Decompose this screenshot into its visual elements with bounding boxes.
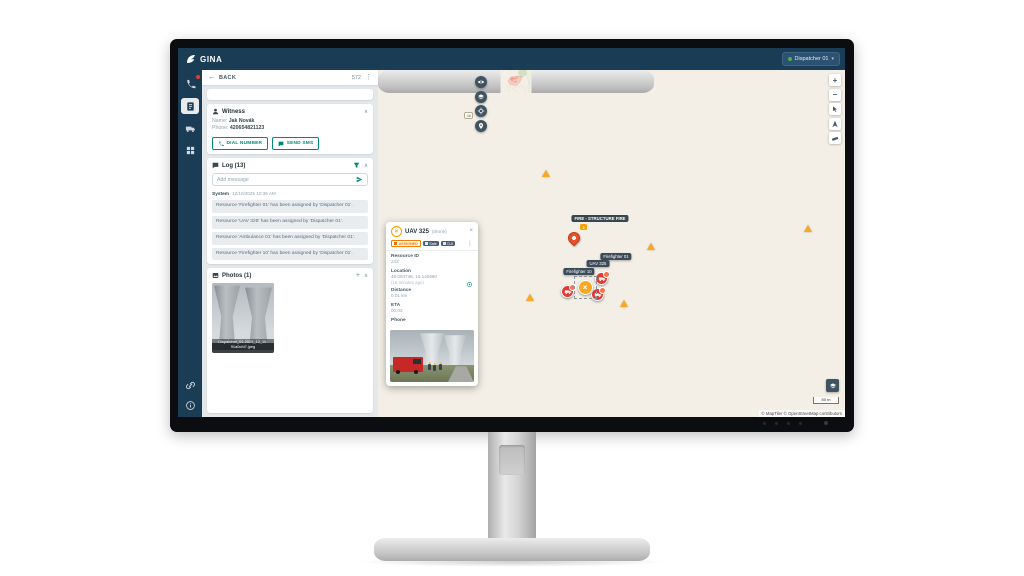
image-icon [212, 272, 219, 279]
collapse-witness-button[interactable]: ∧ [364, 109, 368, 115]
map-scale: 50 m [813, 397, 839, 404]
location-field: Location 49.084746, 16.140660 (16 minute… [391, 269, 473, 285]
witness-name: Name: Jak Novák [212, 118, 368, 125]
brand-name: GINA [200, 55, 222, 64]
panel-menu-button[interactable]: ⋮ [365, 74, 372, 81]
app-screen: GINA Dispatcher 01 ▾ [178, 48, 845, 417]
hazard-triangle-icon [526, 294, 534, 301]
hazard-triangle-icon [804, 225, 812, 232]
grid-icon [185, 145, 196, 156]
event-number: 572 [352, 75, 361, 81]
nav-share-button[interactable] [181, 377, 199, 393]
map-view[interactable]: + − FIRE - STRUCTURE FIRE 2 Firefighter … [378, 70, 845, 417]
send-sms-button[interactable]: SEND SMS [272, 137, 319, 150]
vehicle-icon [185, 123, 196, 134]
filter-icon[interactable] [353, 162, 360, 169]
event-title-card[interactable] [207, 89, 373, 100]
stand-release-slot [499, 445, 525, 475]
uav-popup: × UAV 325 (drone) × ASSIGNED Safe DJI ⋮ [386, 222, 478, 386]
cursor-icon [831, 105, 839, 113]
collapse-photos-button[interactable]: ∧ [364, 273, 368, 279]
witness-phone: Phone: 420654821123 [212, 125, 368, 132]
map-zoom-controls: + − [829, 74, 841, 147]
measure-button[interactable] [829, 132, 841, 144]
resource-label[interactable]: Firefighter 01 [600, 253, 631, 260]
photos-card: Photos (1) + ∧ Dispat [207, 268, 373, 413]
map-canvas [378, 70, 654, 93]
target-icon [466, 281, 473, 288]
firefighter-figure [428, 364, 431, 370]
log-message: Resource 'Firefighter 10' has been assig… [212, 248, 368, 261]
monitor-bezel: GINA Dispatcher 01 ▾ [170, 39, 854, 432]
sms-icon [278, 141, 284, 147]
layers-tool-button[interactable] [475, 91, 487, 103]
phone-icon [218, 141, 224, 147]
gina-logo-icon [185, 53, 197, 65]
user-name: Dispatcher 01 [795, 56, 829, 62]
zoom-in-button[interactable]: + [829, 74, 841, 86]
osd-button [763, 422, 766, 425]
nav-resources-button[interactable] [181, 120, 199, 136]
uav-photo[interactable] [390, 330, 474, 382]
hazard-triangle-icon [647, 243, 655, 250]
fire-incident-marker[interactable] [566, 230, 583, 247]
nav-rail [178, 70, 202, 417]
send-message-button[interactable] [356, 176, 363, 183]
popup-menu-button[interactable]: ⋮ [467, 241, 473, 247]
add-message-input[interactable] [217, 177, 353, 183]
tag-badge: Safe [423, 241, 439, 246]
resource-label[interactable]: UAV 325 [587, 260, 610, 267]
power-led [824, 421, 828, 425]
person-icon [212, 108, 219, 115]
firefighter-marker[interactable] [561, 285, 574, 298]
panel-body: Witness ∧ Name: Jak Novák Phone: 4206548… [202, 85, 378, 417]
hazard-triangle-icon [620, 300, 628, 307]
pin-tool-button[interactable] [475, 120, 487, 132]
fire-truck-icon [598, 275, 606, 283]
back-button[interactable]: BACK [219, 75, 236, 81]
layers-icon [477, 93, 485, 101]
photo-thumbnail[interactable]: Dispatcher_01-2025_12_10- 91a0cfd7.jpeg [212, 283, 274, 353]
resource-label[interactable]: Firefighter 10 [563, 268, 594, 275]
event-detail-panel: ← BACK 572 ⋮ Witness ∧ Name: Jak Nov [202, 70, 378, 417]
monitor-stand-base [374, 538, 650, 561]
phone-field: Phone [391, 318, 473, 323]
back-arrow-icon[interactable]: ← [208, 74, 215, 81]
uav-marker[interactable]: × [578, 280, 593, 295]
chat-icon [212, 162, 219, 169]
nav-info-button[interactable] [181, 397, 199, 413]
photo-caption: Dispatcher_01-2025_12_10- 91a0cfd7.jpeg [212, 339, 274, 351]
visibility-tool-button[interactable] [475, 76, 487, 88]
navigation-arrow-icon [831, 120, 839, 128]
log-message: Resource 'UAV 325' has been assigned by … [212, 216, 368, 229]
eta-field: ETA 00:02 [391, 303, 473, 314]
monitor-stand-neck [488, 432, 536, 538]
crosshair-icon [477, 107, 485, 115]
log-title: Log (13) [222, 163, 245, 169]
top-bar: GINA Dispatcher 01 ▾ [178, 48, 845, 70]
chevron-down-icon: ▾ [831, 56, 834, 62]
drone-icon: × [391, 226, 402, 237]
event-journal-icon [185, 101, 196, 112]
photos-title: Photos (1) [222, 273, 251, 279]
link-icon [185, 380, 196, 391]
nav-calls-button[interactable] [181, 76, 199, 92]
map-tools [475, 76, 487, 134]
nav-dashboard-button[interactable] [181, 142, 199, 158]
log-entry-meta: System12/10/2025 10:39 AM [212, 191, 368, 197]
layers-icon [829, 382, 837, 390]
brand-logo: GINA [185, 53, 222, 65]
status-badge: ASSIGNED [391, 240, 421, 247]
popup-subtitle: (drone) [432, 229, 447, 234]
close-icon[interactable]: × [469, 228, 473, 235]
user-menu[interactable]: Dispatcher 01 ▾ [782, 52, 840, 66]
tag-badge: DJI [441, 241, 455, 246]
log-card: Log (13) ∧ System12/10/2 [207, 158, 373, 264]
gps-tool-button[interactable] [475, 105, 487, 117]
notification-badge [195, 74, 201, 80]
witness-card: Witness ∧ Name: Jak Novák Phone: 4206548… [207, 104, 373, 154]
hazard-triangle-icon [542, 170, 550, 177]
panel-header: ← BACK 572 ⋮ [202, 70, 378, 85]
incident-label[interactable]: FIRE - STRUCTURE FIRE [571, 215, 628, 222]
nav-events-button-selected[interactable] [181, 98, 199, 114]
online-status-dot [788, 57, 792, 61]
log-message: Resource 'Firefighter 01' has been assig… [212, 200, 368, 213]
zoom-out-button[interactable]: − [829, 89, 841, 101]
firefighter-figure [439, 364, 442, 370]
eye-icon [477, 78, 485, 86]
phone-icon [185, 79, 196, 90]
dial-number-button[interactable]: DIAL NUMBER [212, 137, 268, 150]
locate-me-button[interactable] [829, 118, 841, 130]
fire-truck [393, 357, 423, 372]
osd-button [787, 422, 790, 425]
monitor-chin [178, 419, 846, 429]
location-pin-icon [477, 122, 485, 130]
selected-marker-outline: × [574, 276, 597, 299]
popup-badges: ASSIGNED Safe DJI ⋮ [386, 239, 478, 250]
firefighter-marker[interactable] [595, 272, 608, 285]
ruler-icon [831, 134, 839, 142]
info-icon [185, 400, 196, 411]
send-icon [356, 176, 363, 183]
map-attribution[interactable]: © MapTiler © OpenStreetMap contributors [759, 410, 845, 417]
witness-title: Witness [222, 109, 245, 115]
firefighter-figure [433, 365, 436, 371]
popup-title: UAV 325 [405, 229, 429, 235]
osd-button [799, 422, 802, 425]
basemap-button[interactable] [826, 379, 839, 392]
distance-field: Distance 0.01 km [391, 288, 473, 299]
select-tool-button[interactable] [829, 103, 841, 115]
fire-truck-icon [564, 288, 572, 296]
road-ref-badge: 46 [464, 112, 473, 119]
log-message-field [212, 173, 368, 186]
collapse-log-button[interactable]: ∧ [364, 163, 368, 169]
resource-id-field: Resource ID 243 [391, 254, 473, 265]
desk-background: GINA Dispatcher 01 ▾ [0, 0, 1024, 576]
log-message: Resource 'Ambulance 01' has been assigne… [212, 232, 368, 245]
add-photo-button[interactable]: + [356, 272, 360, 279]
incident-count-badge: 2 [580, 224, 587, 230]
osd-button [775, 422, 778, 425]
